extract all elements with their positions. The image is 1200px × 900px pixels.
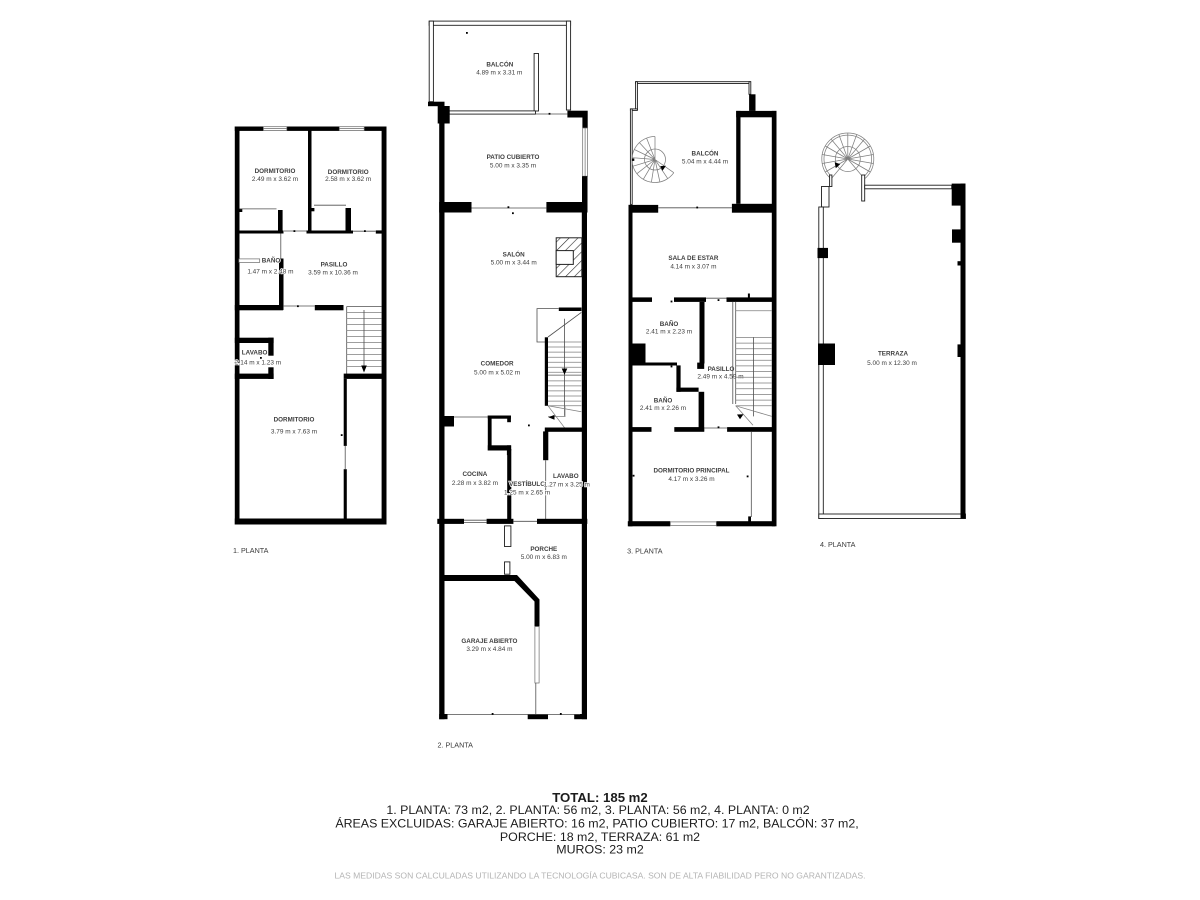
svg-text:TERRAZA: TERRAZA xyxy=(878,351,909,358)
svg-text:3. PLANTA: 3. PLANTA xyxy=(627,547,663,556)
svg-text:ÁREAS EXCLUIDAS: GARAJE ABIERT: ÁREAS EXCLUIDAS: GARAJE ABIERTO: 16 m2, … xyxy=(335,816,858,831)
svg-text:4. PLANTA: 4. PLANTA xyxy=(820,540,856,549)
svg-text:PORCHE: PORCHE xyxy=(530,546,557,553)
svg-text:2.49 m x 4.59 m: 2.49 m x 4.59 m xyxy=(697,373,743,380)
svg-text:5.00 m x 3.44 m: 5.00 m x 3.44 m xyxy=(491,259,537,266)
svg-text:2. PLANTA: 2. PLANTA xyxy=(438,741,474,750)
svg-text:2.41 m x 2.23 m: 2.41 m x 2.23 m xyxy=(646,329,692,336)
svg-text:PATIO CUBIERTO: PATIO CUBIERTO xyxy=(487,154,540,161)
svg-text:2.49 m x 3.62 m: 2.49 m x 3.62 m xyxy=(252,176,298,183)
svg-text:4.14 m x 3.07 m: 4.14 m x 3.07 m xyxy=(670,264,716,271)
svg-text:1. PLANTA: 73 m2, 2. PLANTA: 5: 1. PLANTA: 73 m2, 2. PLANTA: 56 m2, 3. P… xyxy=(386,803,809,817)
svg-text:3.59 m x 10.36 m: 3.59 m x 10.36 m xyxy=(308,269,358,276)
svg-text:3.29 m x 4.84 m: 3.29 m x 4.84 m xyxy=(466,646,512,653)
svg-text:DORMITORIO: DORMITORIO xyxy=(274,417,315,424)
svg-text:SALÓN: SALÓN xyxy=(503,249,525,258)
svg-text:2.28 m x 3.82 m: 2.28 m x 3.82 m xyxy=(452,480,498,487)
svg-text:1.47 m x 2.48 m: 1.47 m x 2.48 m xyxy=(247,269,293,276)
svg-text:3.79 m x 7.63 m: 3.79 m x 7.63 m xyxy=(271,429,317,436)
svg-text:5.00 m x 12.30 m: 5.00 m x 12.30 m xyxy=(867,360,917,367)
svg-text:SALA DE ESTAR: SALA DE ESTAR xyxy=(668,255,718,262)
svg-text:MUROS: 23 m2: MUROS: 23 m2 xyxy=(556,843,644,857)
svg-text:BAÑO: BAÑO xyxy=(660,319,679,328)
svg-text:BAÑO: BAÑO xyxy=(654,396,673,405)
svg-text:2.14 m x 1.23 m: 2.14 m x 1.23 m xyxy=(235,360,281,367)
svg-text:DORMITORIO PRINCIPAL: DORMITORIO PRINCIPAL xyxy=(653,468,729,475)
svg-text:5.04 m x 4.44 m: 5.04 m x 4.44 m xyxy=(682,159,728,166)
svg-text:1.27 m x 3.25 m: 1.27 m x 3.25 m xyxy=(544,481,590,488)
svg-text:1.25 m x 2.65 m: 1.25 m x 2.65 m xyxy=(504,490,550,497)
svg-text:PASILLO: PASILLO xyxy=(321,261,348,268)
svg-text:BALCÓN: BALCÓN xyxy=(692,148,719,157)
svg-text:COCINA: COCINA xyxy=(462,471,487,478)
svg-text:LAVABO: LAVABO xyxy=(242,350,268,357)
svg-text:LAVABO: LAVABO xyxy=(553,473,579,480)
svg-text:5.00 m x 3.35 m: 5.00 m x 3.35 m xyxy=(490,162,536,169)
svg-text:BAÑO: BAÑO xyxy=(262,256,281,265)
svg-text:2.58 m x 3.62 m: 2.58 m x 3.62 m xyxy=(325,176,371,183)
svg-text:DORMITORIO: DORMITORIO xyxy=(328,169,369,176)
svg-text:2.41 m x 2.26 m: 2.41 m x 2.26 m xyxy=(640,405,686,412)
svg-text:DORMITORIO: DORMITORIO xyxy=(255,168,296,175)
svg-text:VESTÍBULO: VESTÍBULO xyxy=(509,479,545,488)
svg-text:COMEDOR: COMEDOR xyxy=(481,360,514,367)
svg-text:PASILLO: PASILLO xyxy=(708,366,735,373)
svg-text:4.89 m x 3.31 m: 4.89 m x 3.31 m xyxy=(476,69,522,76)
svg-text:BALCÓN: BALCÓN xyxy=(486,59,513,68)
svg-text:GARAJE ABIERTO: GARAJE ABIERTO xyxy=(461,638,517,645)
svg-text:5.00 m x 6.83 m: 5.00 m x 6.83 m xyxy=(521,554,567,561)
svg-text:LAS MEDIDAS SON CALCULADAS UTI: LAS MEDIDAS SON CALCULADAS UTILIZANDO LA… xyxy=(334,871,865,881)
svg-text:4.17 m x 3.26 m: 4.17 m x 3.26 m xyxy=(668,476,714,483)
svg-text:1. PLANTA: 1. PLANTA xyxy=(233,546,269,555)
svg-text:5.00 m x 5.02 m: 5.00 m x 5.02 m xyxy=(474,369,520,376)
